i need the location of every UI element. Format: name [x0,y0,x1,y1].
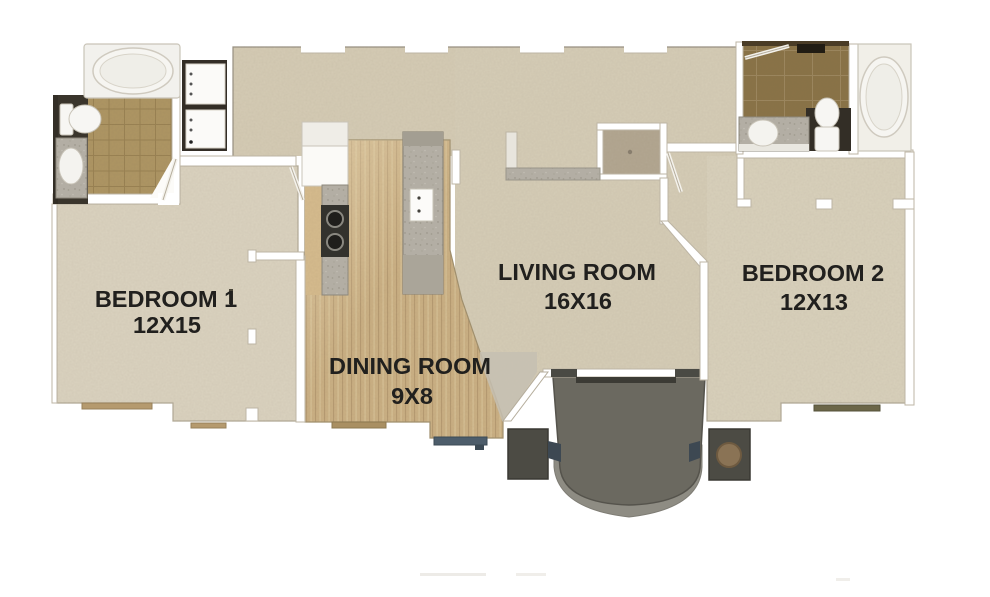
svg-text:BEDROOM 2: BEDROOM 2 [742,260,884,286]
svg-text:DINING ROOM: DINING ROOM [329,353,491,379]
svg-text:LIVING ROOM: LIVING ROOM [498,259,656,285]
svg-text:12X13: 12X13 [780,289,848,315]
svg-text:9X8: 9X8 [391,383,433,409]
svg-text:BEDROOM 1: BEDROOM 1 [95,286,237,312]
svg-text:16X16: 16X16 [544,288,612,314]
svg-text:12X15: 12X15 [133,312,201,338]
